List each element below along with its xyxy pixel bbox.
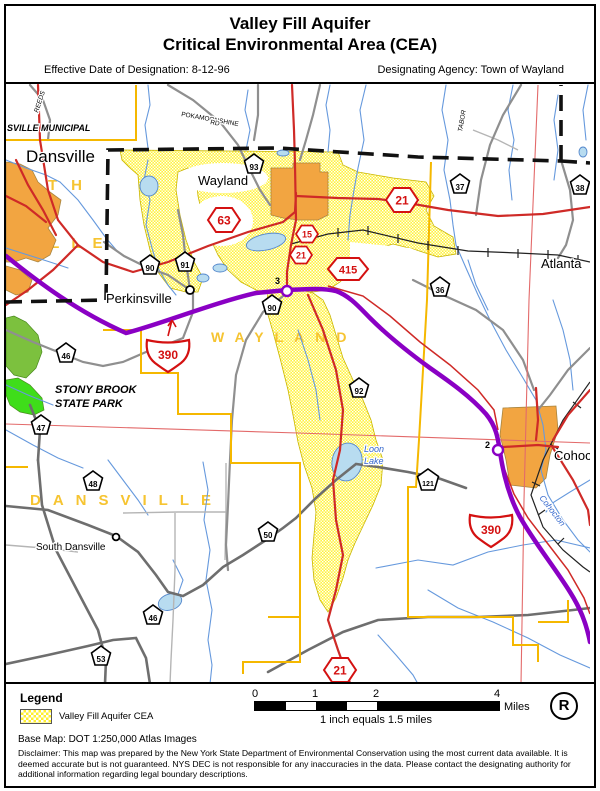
- title-line-2: Critical Environmental Area (CEA): [6, 34, 594, 55]
- registered-trademark-icon: R: [550, 692, 578, 720]
- shield-46b: 46: [149, 614, 158, 623]
- title-line-1: Valley Fill Aquifer: [6, 13, 594, 34]
- shield-46a: 46: [62, 352, 71, 361]
- shield-92: 92: [355, 387, 364, 396]
- shield-15: 15: [302, 230, 312, 240]
- urban-wayland: [271, 163, 328, 220]
- aquifer-swatch: [20, 709, 52, 724]
- label-dansville: Dansville: [26, 147, 95, 166]
- exit-3-label: 3: [275, 276, 280, 286]
- page-title: Valley Fill Aquifer Critical Environment…: [6, 6, 594, 56]
- scale-tick-4: 4: [494, 688, 500, 700]
- map-svg: WAYLAND DANSVILLE TH VILLE: [6, 84, 590, 682]
- document-frame: Valley Fill Aquifer Critical Environment…: [4, 4, 596, 788]
- label-loon-1: Loon: [364, 444, 384, 454]
- scale-tick-0: 0: [252, 688, 258, 700]
- shield-38: 38: [576, 184, 585, 193]
- shield-93: 93: [250, 163, 259, 172]
- town-label-dansville: DANSVILLE: [30, 492, 223, 509]
- label-wayland: Wayland: [198, 173, 248, 188]
- label-loon-2: Lake: [364, 456, 384, 466]
- label-stony-brook-1: STONY BROOK: [55, 384, 138, 396]
- exit-3-marker: [282, 286, 292, 296]
- label-cohocton-village: Cohocton: [554, 448, 590, 463]
- shield-90b: 90: [268, 304, 277, 313]
- shield-63: 63: [217, 214, 231, 228]
- map-document-page: Valley Fill Aquifer Critical Environment…: [0, 0, 600, 791]
- title-block: Valley Fill Aquifer Critical Environment…: [6, 6, 594, 84]
- shield-21c: 21: [333, 664, 347, 678]
- exit-2-label: 2: [485, 440, 490, 450]
- scale-tick-1: 1: [312, 688, 318, 700]
- label-atlanta: Atlanta: [541, 256, 582, 271]
- scale-bar-ticks: 0 1 2 4: [254, 688, 544, 700]
- scale-bar-segments: [254, 701, 500, 711]
- shield-390a: 390: [158, 348, 178, 362]
- shield-21a: 21: [296, 251, 306, 261]
- shield-390b: 390: [481, 523, 501, 537]
- shield-37: 37: [456, 183, 465, 192]
- label-perkinsville: Perkinsville: [106, 291, 172, 306]
- label-municipal: SVILLE MUNICIPAL: [7, 123, 90, 133]
- shield-21b: 21: [395, 194, 409, 208]
- scale-tick-2: 2: [373, 688, 379, 700]
- shield-50: 50: [264, 531, 273, 540]
- shield-91: 91: [181, 261, 190, 270]
- designating-agency: Designating Agency: Town of Wayland: [377, 64, 564, 76]
- scale-unit: Miles: [504, 701, 530, 713]
- perkinsville-marker: [186, 286, 194, 294]
- label-stony-brook-2: STATE PARK: [55, 398, 124, 410]
- effective-date: Effective Date of Designation: 8-12-96: [44, 64, 230, 76]
- shield-53: 53: [97, 655, 106, 664]
- lake-pond-west: [140, 176, 158, 196]
- shield-90a: 90: [146, 264, 155, 273]
- shield-121: 121: [422, 481, 434, 488]
- legend-block: Legend Valley Fill Aquifer CEA 0 1 2 4 M…: [6, 684, 594, 780]
- scale-caption: 1 inch equals 1.5 miles: [254, 714, 498, 726]
- south-dansville-marker: [113, 534, 120, 541]
- map-area: WAYLAND DANSVILLE TH VILLE: [6, 84, 594, 684]
- base-map-note: Base Map: DOT 1:250,000 Atlas Images: [18, 734, 197, 745]
- disclaimer-text: Disclaimer: This map was prepared by the…: [18, 748, 584, 780]
- shield-36: 36: [436, 286, 445, 295]
- shield-47: 47: [37, 424, 46, 433]
- label-south-dansville: South Dansville: [36, 542, 106, 553]
- scale-bar: 0 1 2 4 Miles 1 inch equals 1.5 miles: [254, 688, 544, 726]
- shield-48: 48: [89, 480, 98, 489]
- legend-item-aquifer: Valley Fill Aquifer CEA: [20, 709, 153, 724]
- shield-415: 415: [339, 265, 357, 277]
- legend-heading: Legend: [20, 691, 63, 705]
- exit-2-marker: [493, 445, 503, 455]
- aquifer-swatch-label: Valley Fill Aquifer CEA: [59, 711, 153, 722]
- town-label-wayland: WAYLAND: [211, 329, 358, 345]
